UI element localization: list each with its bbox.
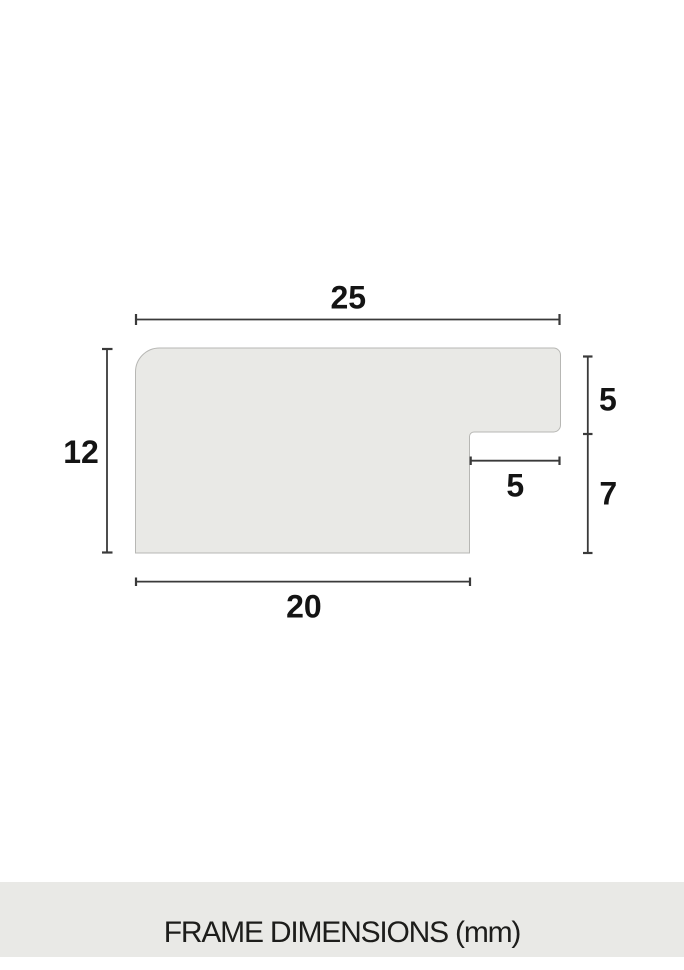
- svg-text:7: 7: [599, 476, 617, 512]
- svg-text:25: 25: [331, 280, 367, 316]
- svg-text:12: 12: [63, 434, 99, 470]
- svg-text:20: 20: [286, 589, 322, 625]
- svg-text:5: 5: [506, 468, 524, 504]
- svg-text:5: 5: [599, 382, 617, 418]
